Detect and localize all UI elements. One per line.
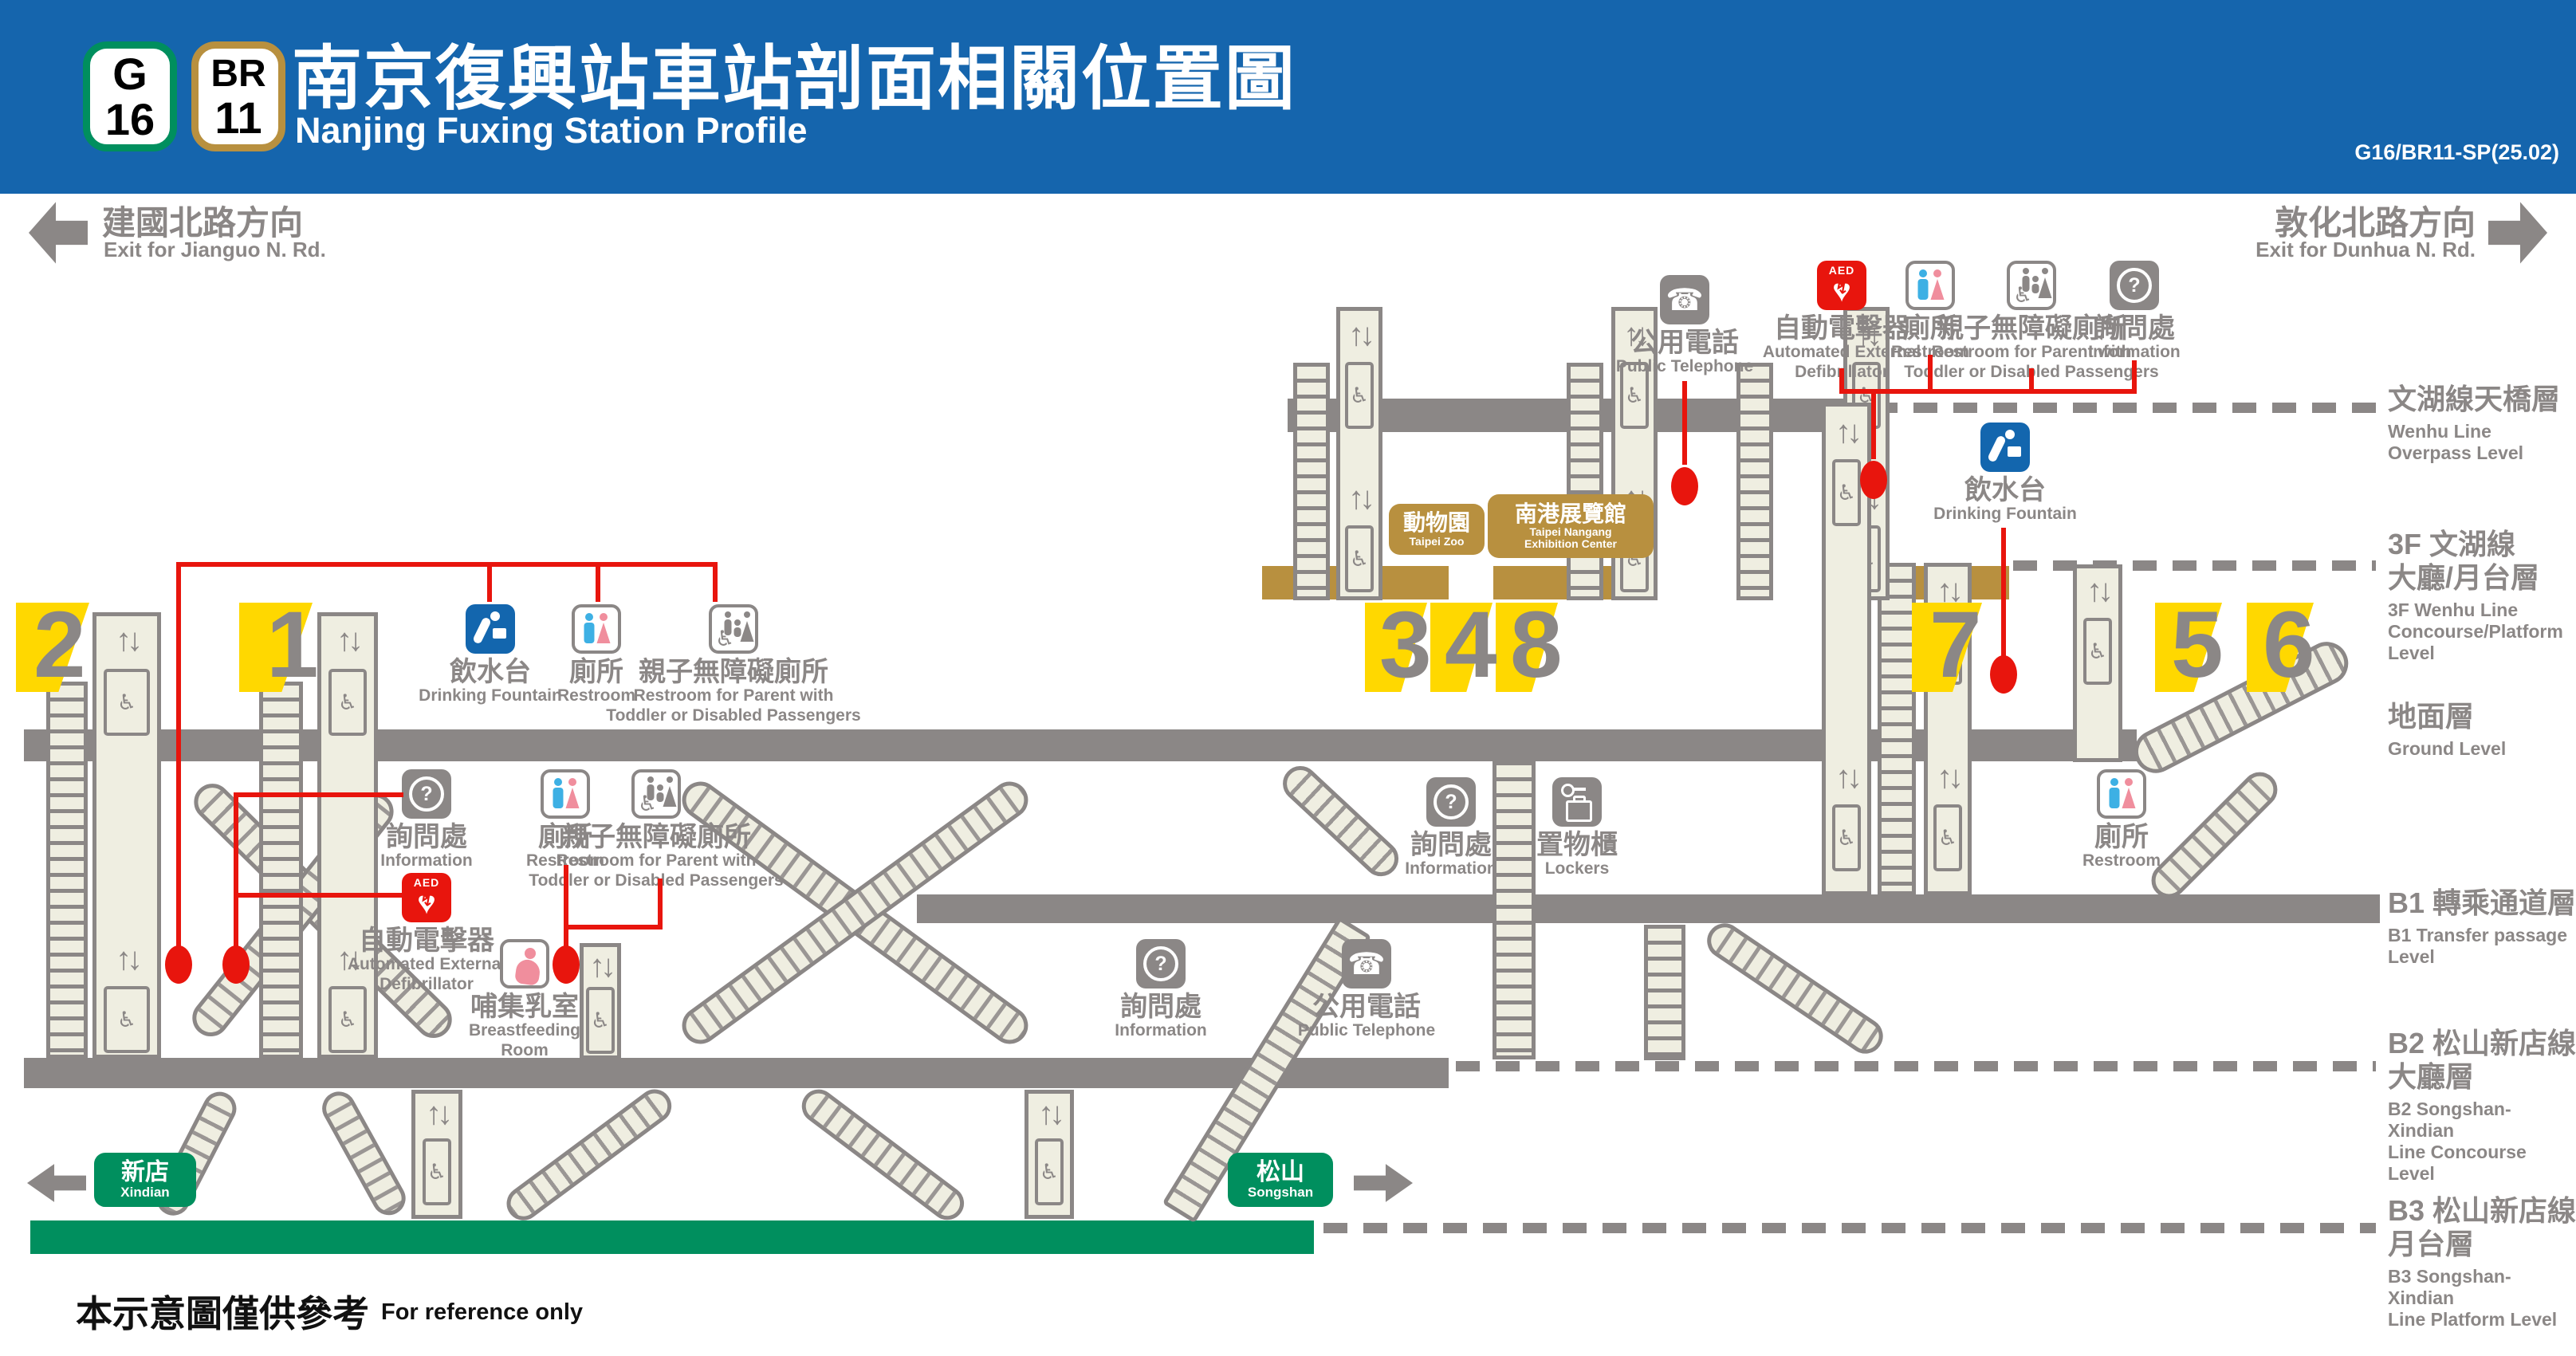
exit-number-2: 2 [33,598,86,692]
stairs [1736,363,1773,600]
red-location-dot [553,945,580,984]
wheelchair-accessible-icon: ♿ [1035,1138,1064,1205]
footer-note-en: For reference only [381,1299,583,1326]
facility-info: ? [1426,777,1476,827]
exit-number-1: 1 [266,598,319,692]
station-badge-br11: BR 11 [191,41,285,151]
exit-number-3: 3 [1379,598,1432,692]
level-dashline-3f [2013,560,2376,571]
badge-letter: G [112,51,147,97]
facility-family_restroom-label-zh: 親子無障礙廁所 [481,822,832,852]
information-question-icon: ? [409,776,444,812]
red-callout-line [658,878,663,930]
elevator: ↑↓♿↑↓♿ [92,612,161,1059]
badge-number: 16 [105,97,155,142]
level-label-3f-zh: 3F 文湖線大廳/月台層 [2388,528,2576,595]
red-callout-line [596,562,600,602]
facility-family_restroom: ♿ [631,769,681,819]
facility-phone-label-en: Public Telephone [1191,1020,1542,1040]
red-callout-line [1871,389,1876,459]
family-accessible-restroom-icon: ♿ [2007,261,2056,310]
destination-songshan: 松山Songshan [1228,1153,1333,1207]
left-direction-arrow-icon [29,199,88,266]
aed-heart-icon: ♥↯ [417,887,436,919]
public-telephone-icon: ☎ [1347,946,1385,982]
badge-letter: BR [210,53,265,96]
wheelchair-accessible-icon: ♿ [1832,804,1861,871]
escalator [317,1086,412,1221]
left-direction-en: Exit for Jianguo N. Rd. [104,238,326,262]
red-callout-line [1682,381,1687,465]
elevator-updown-arrows-icon: ↑↓ [96,943,157,975]
public-telephone-icon: ☎ [1666,282,1703,318]
red-callout-line [179,562,718,567]
level-label-overpass-zh: 文湖線天橋層 [2388,383,2576,416]
station-badge-g16: G 16 [83,41,177,151]
facility-aed-label-zh: 自動電擊器 [251,926,602,956]
right-direction-arrow-icon [2488,199,2547,266]
red-callout-line [564,865,568,949]
red-callout-line [566,925,660,930]
information-question-icon: ? [1143,946,1178,981]
breastfeeding-room-icon [500,939,549,989]
lockers-key-icon [1552,777,1602,827]
red-location-dot [1671,467,1698,505]
aed-heart-icon: ♥↯ [1832,275,1851,307]
facility-info: ? [1136,939,1186,989]
facility-lockers-label-en: Lockers [1402,859,1752,878]
elevator-updown-arrows-icon: ↑↓ [1928,761,1968,793]
facility-aed-label-en: Automated ExternalDefibrillator [251,954,602,994]
level-label-b3-en: B3 Songshan-XindianLine Platform Level [2388,1266,2576,1330]
wheelchair-accessible-icon: ♿ [423,1138,451,1205]
footer-note-zh: 本示意圖僅供參考 [76,1285,369,1338]
red-location-dot [222,945,250,984]
destination-nangang-exhibition: 南港展覽館Taipei NangangExhibition Center [1488,494,1654,558]
wheelchair-accessible-icon: ♿ [104,669,150,736]
stairs [1644,925,1685,1060]
station-profile-diagram: G 16 BR 11 南京復興站車站剖面相關位置圖 Nanjing Fuxing… [0,0,2576,1356]
facility-aed: AED♥↯ [1817,261,1866,310]
red-callout-line [234,792,238,952]
facility-family_restroom-label-en: Restroom for Parent withToddler or Disab… [481,851,832,890]
badge-number: 11 [214,96,262,140]
elevator-updown-arrows-icon: ↑↓ [415,1098,458,1130]
elevator-updown-arrows-icon: ↑↓ [2077,575,2118,607]
elevator-updown-arrows-icon: ↑↓ [1028,1098,1070,1130]
facility-family_restroom-label-en: Restroom for Parent withToddler or Disab… [558,686,909,725]
level-bar-b3 [30,1220,1314,1254]
escalator [795,1083,970,1227]
wheelchair-accessible-icon: ♿ [1345,525,1374,592]
level-bar-b1 [917,894,2380,923]
stairs [1878,563,1916,895]
wheelchair-accessible-icon: ♿ [104,986,150,1053]
facility-fountain-label-en: Drinking Fountain [1830,504,2181,524]
facility-restroom-label-zh: 廁所 [1946,822,2297,852]
level-label-b3-zh: B3 松山新店線月台層 [2388,1194,2576,1261]
escalator [500,1083,678,1227]
level-label-3f-en: 3F Wenhu LineConcourse/PlatformLevel [2388,599,2576,664]
restroom-icon [2097,769,2146,819]
red-location-dot [165,945,192,984]
elevator-updown-arrows-icon: ↑↓ [1826,416,1867,448]
level-label-ground-en: Ground Level [2388,738,2576,760]
elevator-updown-arrows-icon: ↑↓ [321,624,374,656]
red-callout-line [713,562,718,602]
level-dashline-b2 [1456,1061,2376,1071]
facility-family_restroom: ♿ [709,604,758,654]
level-label-b1-zh: B1 轉乘通道層 [2388,886,2576,920]
elevator-updown-arrows-icon: ↑↓ [96,624,157,656]
exit-number-8: 8 [1510,598,1563,692]
facility-restroom [1905,261,1955,310]
exit-number-7: 7 [1929,598,1982,692]
facility-lockers [1552,777,1602,827]
facility-breastfeeding-label-zh: 哺集乳室 [349,992,700,1022]
level-label-b2-en: B2 Songshan-XindianLine Concourse Level [2388,1099,2576,1185]
elevator-updown-arrows-icon: ↑↓ [1826,761,1867,793]
destination-taipei-zoo: 動物園Taipei Zoo [1389,504,1485,555]
red-callout-line [1839,389,2137,394]
page-title-zh: 南京復興站車站剖面相關位置圖 [292,22,1296,124]
level-label-b2-zh: B2 松山新店線大廳層 [2388,1027,2576,1094]
facility-family_restroom-label-zh: 親子無障礙廁所 [558,657,909,687]
red-callout-line [236,792,403,797]
escalator [1701,917,1890,1060]
destination-xindian: 新店Xindian [94,1153,196,1207]
wheelchair-accessible-icon: ♿ [1345,362,1374,429]
facility-fountain [1980,423,2030,472]
red-callout-line [2001,528,2006,662]
exit-number-6: 6 [2263,598,2315,692]
information-question-icon: ? [1434,784,1469,819]
stairs [46,682,88,1059]
drinking-fountain-icon [1980,423,2030,472]
exit-number-5: 5 [2171,598,2224,692]
facility-breastfeeding-label-en: BreastfeedingRoom [349,1020,700,1060]
elevator: ↑↓♿ [1025,1090,1074,1219]
level-label-overpass-en: Wenhu LineOverpass Level [2388,421,2576,464]
songshan-direction-arrow-icon [1354,1162,1413,1204]
stairs [1567,363,1603,600]
right-direction-en: Exit for Dunhua N. Rd. [2073,238,2476,262]
facility-info: ? [2110,261,2159,310]
elevator: ↑↓♿↑↓♿ [1336,307,1382,600]
facility-phone-label-zh: 公用電話 [1191,992,1542,1022]
level-label-ground-zh: 地面層 [2388,700,2576,733]
wheelchair-accessible-icon: ♿ [2083,618,2112,685]
red-callout-line [176,562,181,954]
restroom-icon [1905,261,1955,310]
red-callout-line [487,562,492,602]
red-callout-line [236,893,403,898]
elevator: ↑↓♿ [411,1090,462,1219]
facility-phone: ☎ [1342,939,1391,989]
level-dashline-overpass [1874,403,2376,413]
xindian-direction-arrow-icon [27,1162,86,1204]
facility-restroom-label-en: Restroom [1946,851,2297,871]
facility-info-label-en: Information [1959,342,2310,362]
red-location-dot [1860,461,1887,499]
facility-lockers-label-zh: 置物櫃 [1402,830,1752,860]
elevator-updown-arrows-icon: ↑↓ [1340,482,1378,514]
facility-aed: AED♥↯ [402,873,451,922]
diagram-code: G16/BR11-SP(25.02) [2256,140,2559,165]
level-dashline-b3 [1323,1223,2376,1233]
facility-fountain [466,604,515,654]
page-title-en: Nanjing Fuxing Station Profile [295,110,808,151]
facility-restroom [572,604,621,654]
exit-number-4: 4 [1445,598,1497,692]
level-label-b1-en: B1 Transfer passageLevel [2388,925,2576,968]
drinking-fountain-icon [466,604,515,654]
information-question-icon: ? [2117,268,2152,303]
family-accessible-restroom-icon: ♿ [631,769,681,819]
stairs [1293,363,1330,600]
elevator: ↑↓♿ [2073,564,2122,762]
facility-restroom [541,769,590,819]
red-location-dot [1990,655,2017,694]
elevator-updown-arrows-icon: ↑↓ [1340,319,1378,351]
family-accessible-restroom-icon: ♿ [709,604,758,654]
facility-info: ? [402,769,451,819]
header-bar: G 16 BR 11 南京復興站車站剖面相關位置圖 Nanjing Fuxing… [0,0,2576,194]
restroom-icon [572,604,621,654]
facility-breastfeeding [500,939,549,989]
facility-family_restroom: ♿ [2007,261,2056,310]
restroom-icon [541,769,590,819]
facility-info-label-zh: 詢問處 [1959,313,2310,344]
red-callout-line [1928,355,1933,394]
facility-restroom [2097,769,2146,819]
